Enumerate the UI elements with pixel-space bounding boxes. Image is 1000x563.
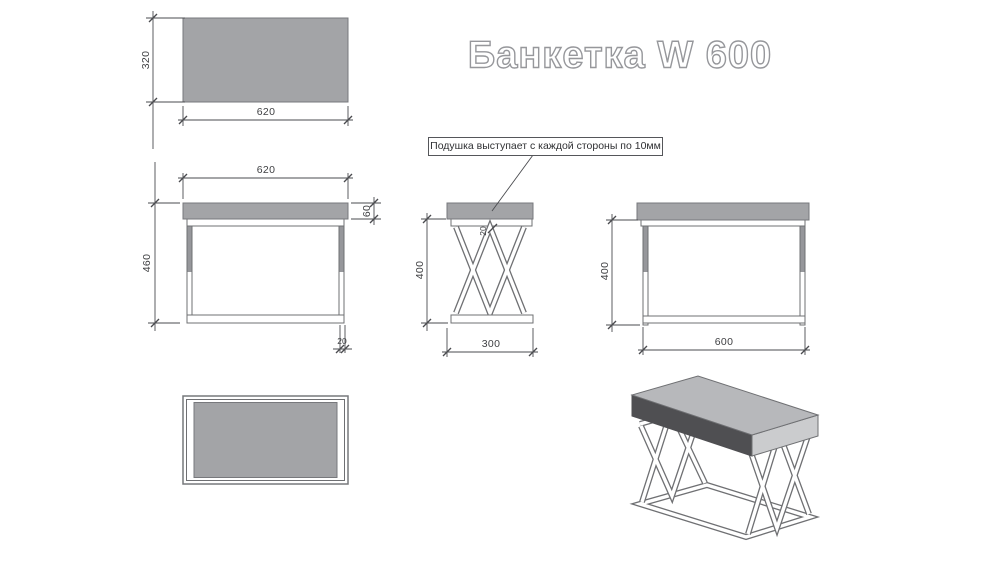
dim-front-height: 460 (141, 254, 153, 272)
dim-front-cushion: 60 (361, 205, 373, 217)
end-view (606, 203, 810, 355)
front-bottom-rail (187, 315, 344, 323)
side-view (421, 155, 538, 357)
top-view-cushion (183, 18, 348, 102)
side-cushion (447, 203, 533, 219)
front-top-rail (187, 219, 344, 226)
sheet-title: Банкетка W 600 (468, 35, 772, 78)
dim-front-width: 620 (257, 164, 275, 176)
dim-side-width: 300 (482, 338, 500, 350)
side-leg-vee (456, 227, 524, 313)
end-cushion (637, 203, 809, 220)
dim-end-width: 600 (715, 336, 733, 348)
bottom-view (183, 396, 348, 484)
top-view (146, 11, 353, 149)
dim-top-width: 620 (257, 106, 275, 118)
end-top-rail (641, 220, 805, 226)
blueprint-sheet: Банкетка W 600 Подушка выступает с каждо… (0, 0, 1000, 563)
end-bottom-rail (643, 316, 805, 323)
technical-drawing (0, 0, 1000, 563)
cushion-callout-note: Подушка выступает с каждой стороны по 10… (428, 137, 663, 156)
front-view (148, 162, 381, 353)
side-leg-lambda (456, 227, 524, 313)
side-bottom-bar (451, 315, 533, 323)
dim-side-height: 400 (414, 261, 426, 279)
dim-end-height: 400 (599, 262, 611, 280)
bottom-view-cushion (194, 403, 337, 478)
iso-view (632, 376, 818, 537)
dim-front-leg: 20 (337, 336, 346, 346)
dim-top-depth: 320 (140, 51, 152, 69)
front-cushion (183, 203, 348, 219)
dim-side-tube: 20 (478, 226, 488, 235)
